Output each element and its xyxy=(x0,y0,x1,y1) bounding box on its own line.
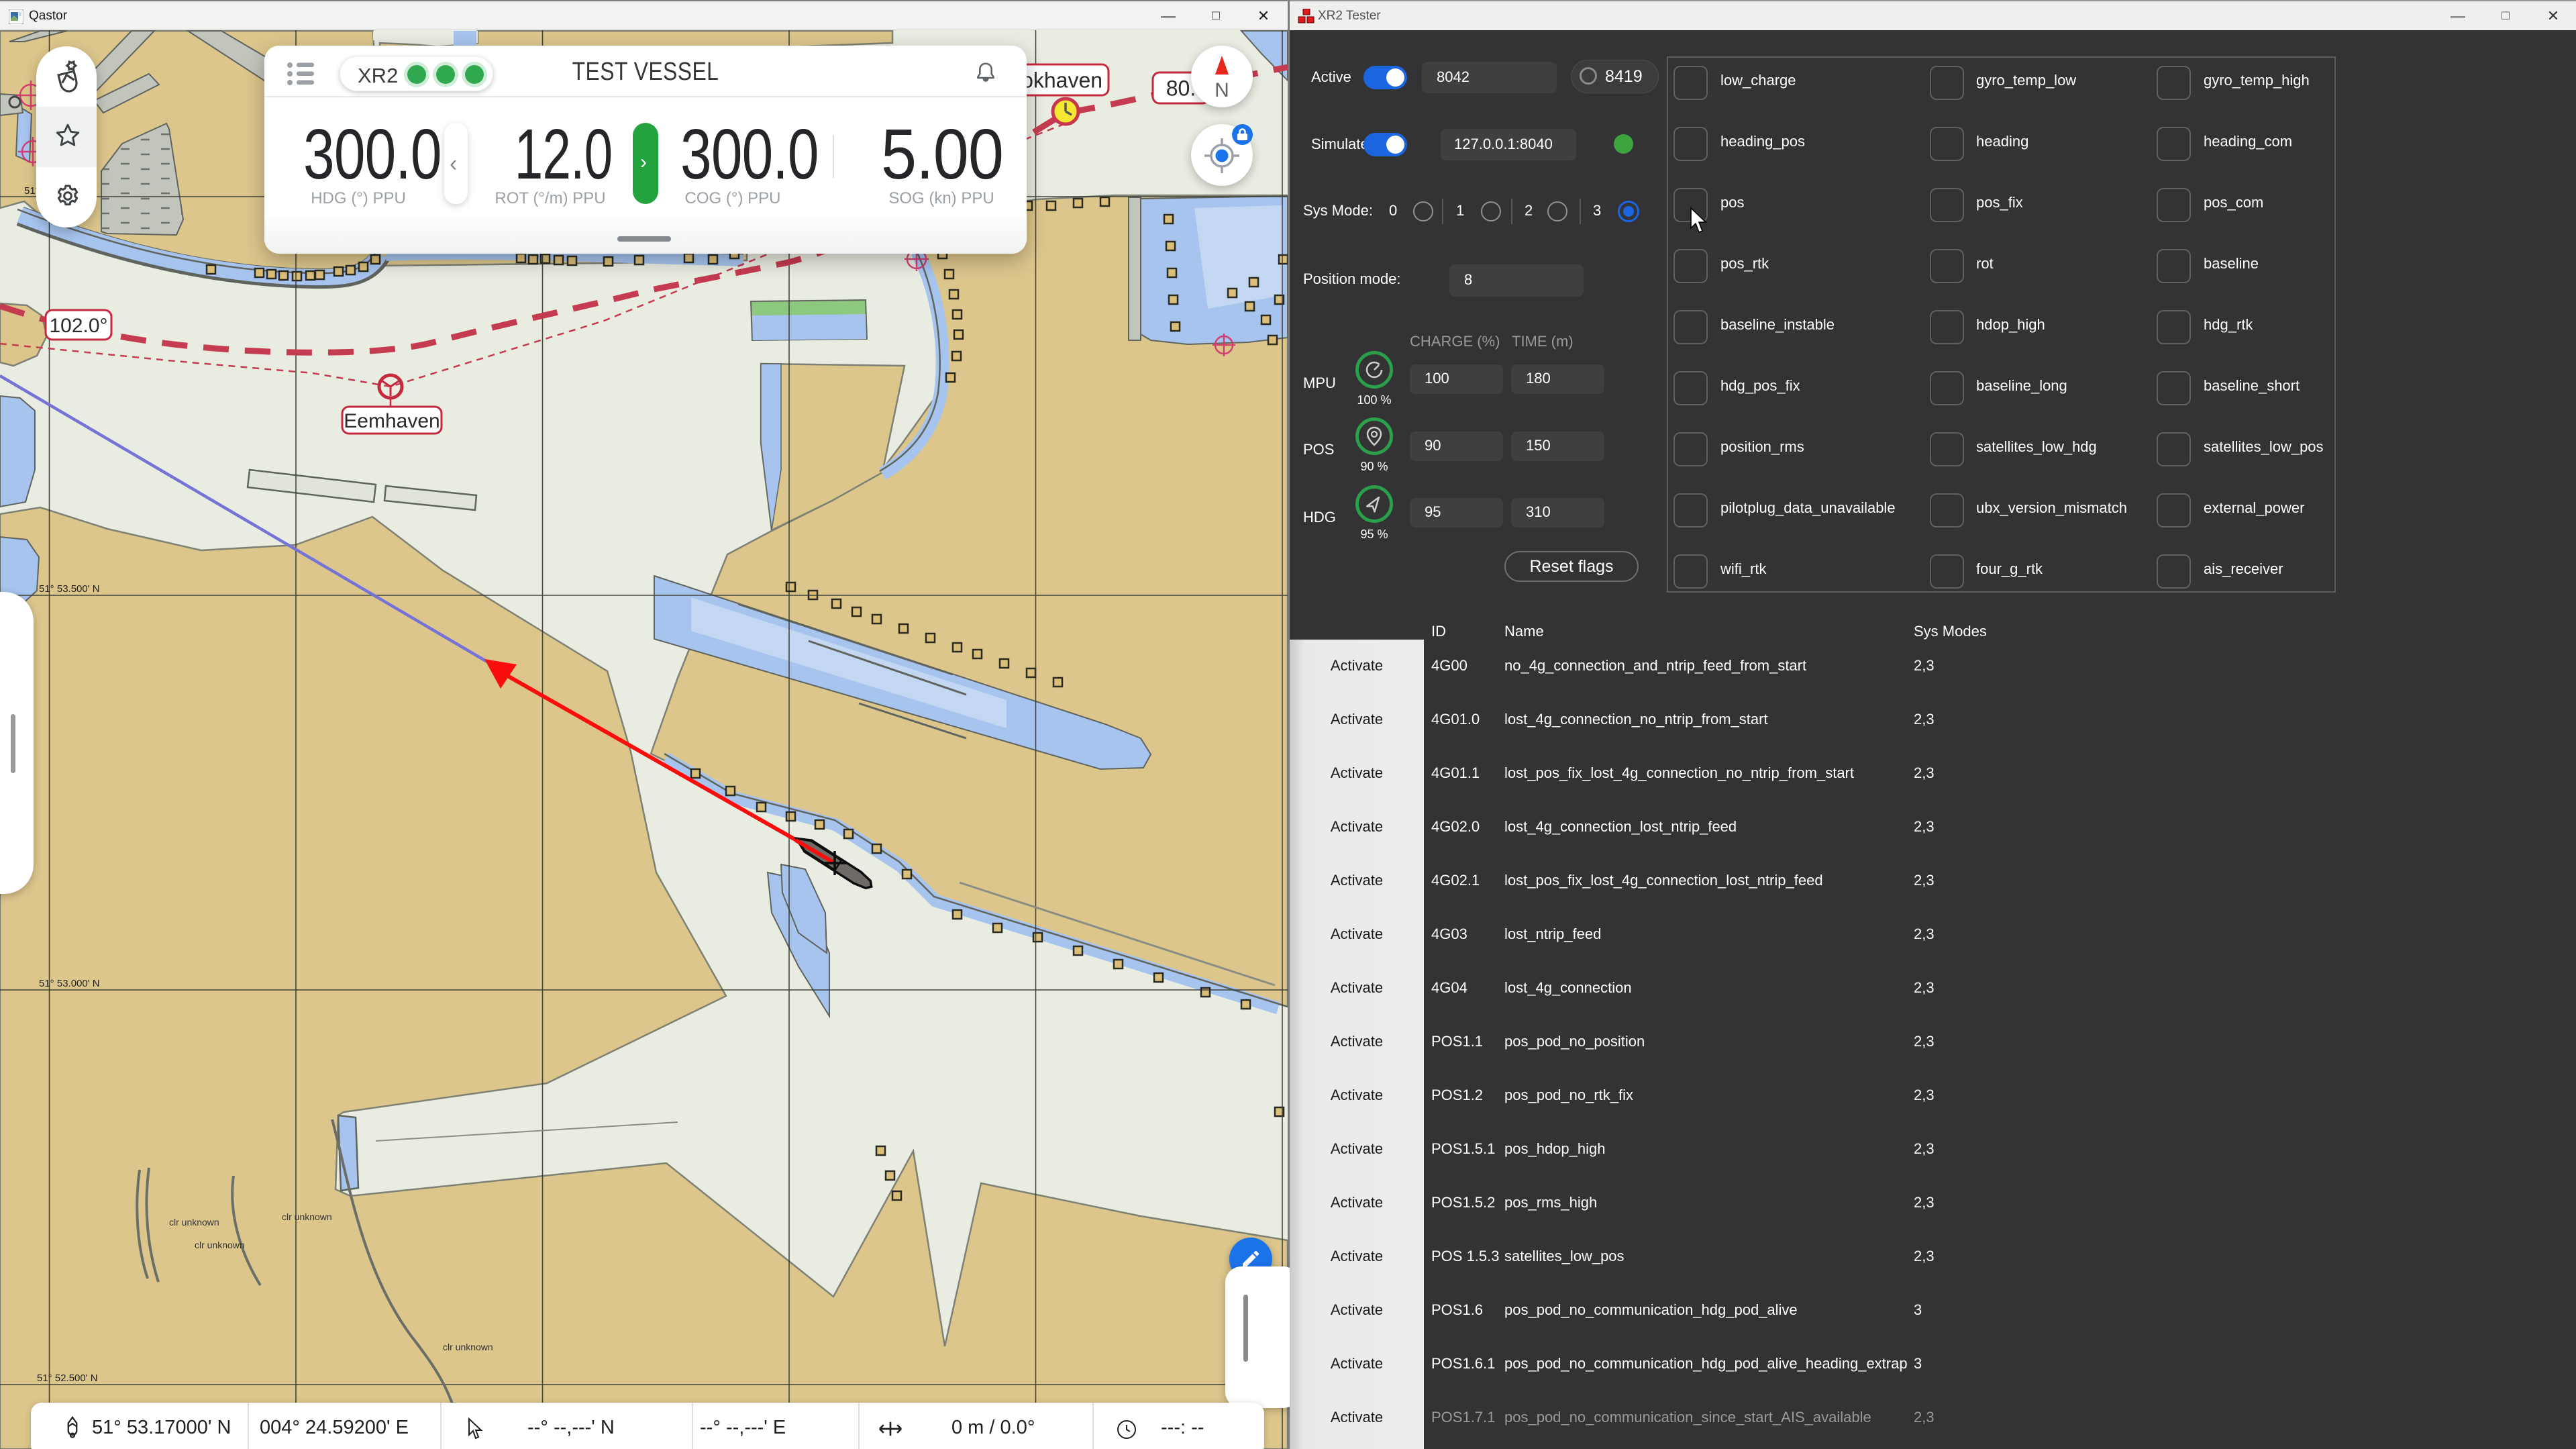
svg-text:102.0°: 102.0° xyxy=(49,315,107,337)
svg-text:clr unknown: clr unknown xyxy=(282,1211,332,1222)
svg-text:N: N xyxy=(1215,79,1229,101)
svg-text:51° 53.000' N: 51° 53.000' N xyxy=(39,978,100,989)
svg-text:clr unknown: clr unknown xyxy=(195,1240,245,1250)
svg-text:Eemhaven: Eemhaven xyxy=(344,410,440,432)
svg-text:clr unknown: clr unknown xyxy=(443,1342,493,1352)
svg-text:51° 53.500' N: 51° 53.500' N xyxy=(39,583,100,595)
svg-text:clr unknown: clr unknown xyxy=(169,1217,219,1228)
svg-text:51° 52.500' N: 51° 52.500' N xyxy=(37,1372,98,1384)
